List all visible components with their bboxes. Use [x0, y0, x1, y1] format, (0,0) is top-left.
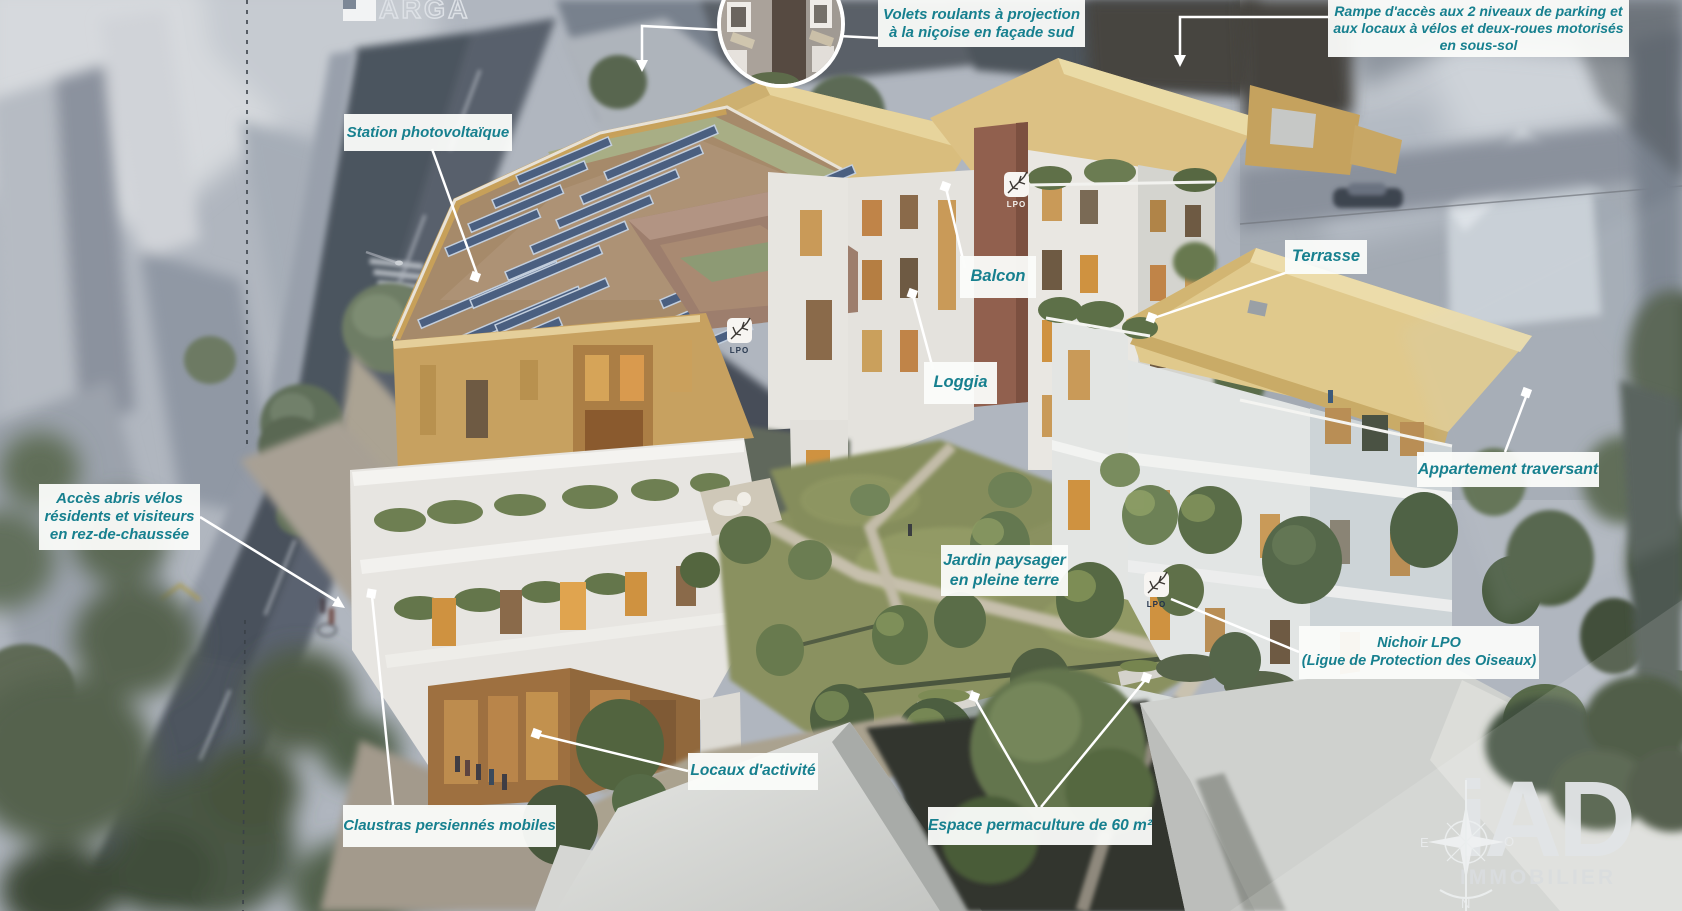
svg-text:O: O [1504, 834, 1514, 849]
svg-text:LPO: LPO [1147, 600, 1166, 609]
svg-text:E: E [1420, 835, 1429, 850]
svg-text:LPO: LPO [730, 346, 749, 355]
svg-text:IMMOBILIER: IMMOBILIER [1460, 866, 1616, 889]
svg-text:LPO: LPO [1007, 200, 1026, 209]
svg-text:ARGA: ARGA [379, 0, 471, 24]
svg-text:N: N [1461, 896, 1470, 911]
